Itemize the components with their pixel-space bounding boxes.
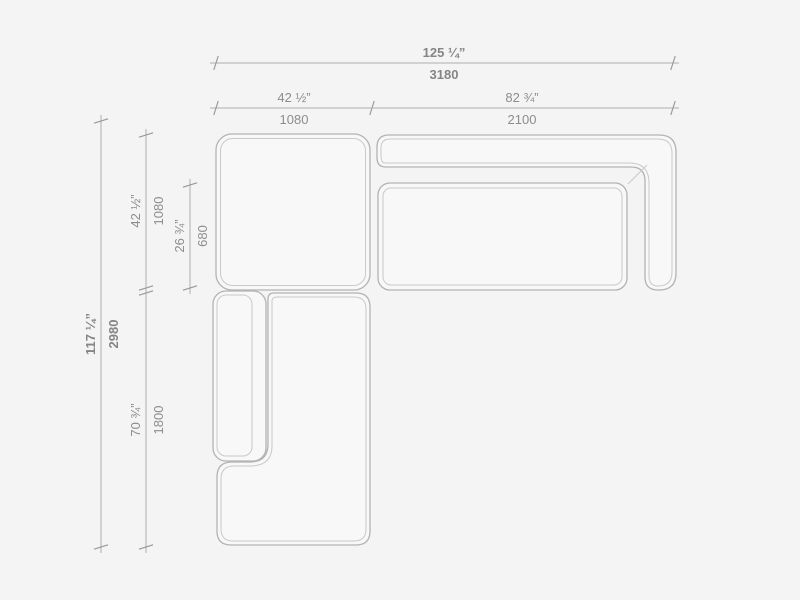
chaise-armrest: [213, 291, 266, 461]
dim-label-inches: 42 ½”: [128, 194, 143, 227]
drawing-canvas: 125 ¼” 3180 42 ½” 1080 82 ¾” 2100 117 ¼”…: [0, 0, 800, 600]
dim-chaise-depth: 70 ¾” 1800: [128, 287, 166, 553]
dim-label-inches: 42 ½”: [277, 90, 310, 105]
dim-seat-depth: 26 ¾” 680: [172, 179, 210, 294]
dim-label-mm: 1800: [151, 406, 166, 435]
dim-label-mm: 1080: [280, 112, 309, 127]
dim-sofa-width: 82 ¾” 2100: [366, 90, 679, 127]
dim-overall-depth: 117 ¼” 2980: [83, 115, 121, 553]
dim-label-mm: 2980: [106, 320, 121, 349]
ottoman-module: [216, 134, 370, 290]
dim-label-mm: 680: [195, 225, 210, 247]
dim-ottoman-width: 42 ½” 1080: [210, 90, 378, 127]
seat-outline: [378, 183, 627, 290]
dim-label-inches: 117 ¼”: [83, 313, 98, 355]
ottoman-outline: [216, 134, 370, 290]
dim-label-inches: 125 ¼”: [423, 45, 466, 60]
dim-label-inches: 26 ¾”: [172, 219, 187, 252]
dimension-annotations: 125 ¼” 3180 42 ½” 1080 82 ¾” 2100 117 ¼”…: [83, 45, 679, 553]
dim-label-mm: 3180: [430, 67, 459, 82]
dim-label-mm: 2100: [508, 112, 537, 127]
dim-ottoman-depth: 42 ½” 1080: [128, 129, 166, 294]
furniture-plan: [213, 134, 676, 545]
sofa-dimension-drawing: 125 ¼” 3180 42 ½” 1080 82 ¾” 2100 117 ¼”…: [0, 0, 800, 600]
dim-label-inches: 82 ¾”: [505, 90, 538, 105]
dim-label-mm: 1080: [151, 197, 166, 226]
chaise-armrest-outline: [213, 291, 266, 461]
dim-overall-width: 125 ¼” 3180: [210, 45, 679, 82]
dim-label-inches: 70 ¾”: [128, 403, 143, 436]
sofa-seat: [378, 183, 627, 290]
